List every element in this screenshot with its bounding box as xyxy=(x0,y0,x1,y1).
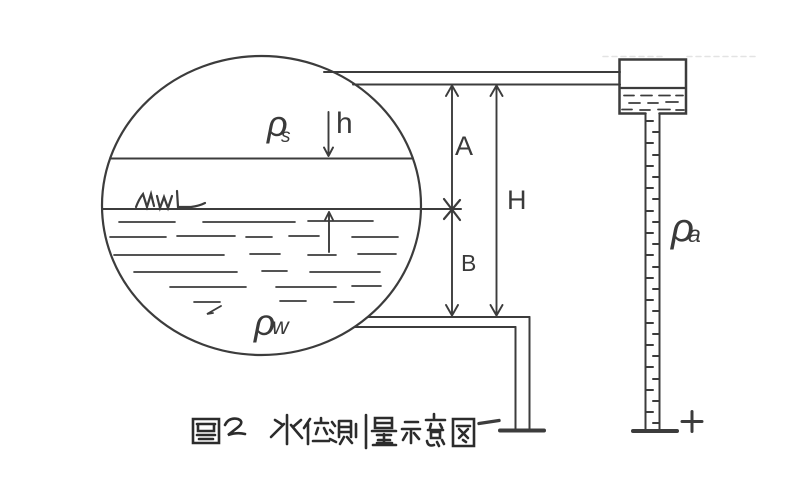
svg-text:w: w xyxy=(272,313,290,339)
svg-text:s: s xyxy=(281,126,291,147)
svg-text:a: a xyxy=(688,221,701,247)
svg-text:A: A xyxy=(455,131,473,161)
svg-text:H: H xyxy=(507,185,527,215)
svg-text:B: B xyxy=(461,250,476,276)
svg-text:h: h xyxy=(336,107,353,140)
